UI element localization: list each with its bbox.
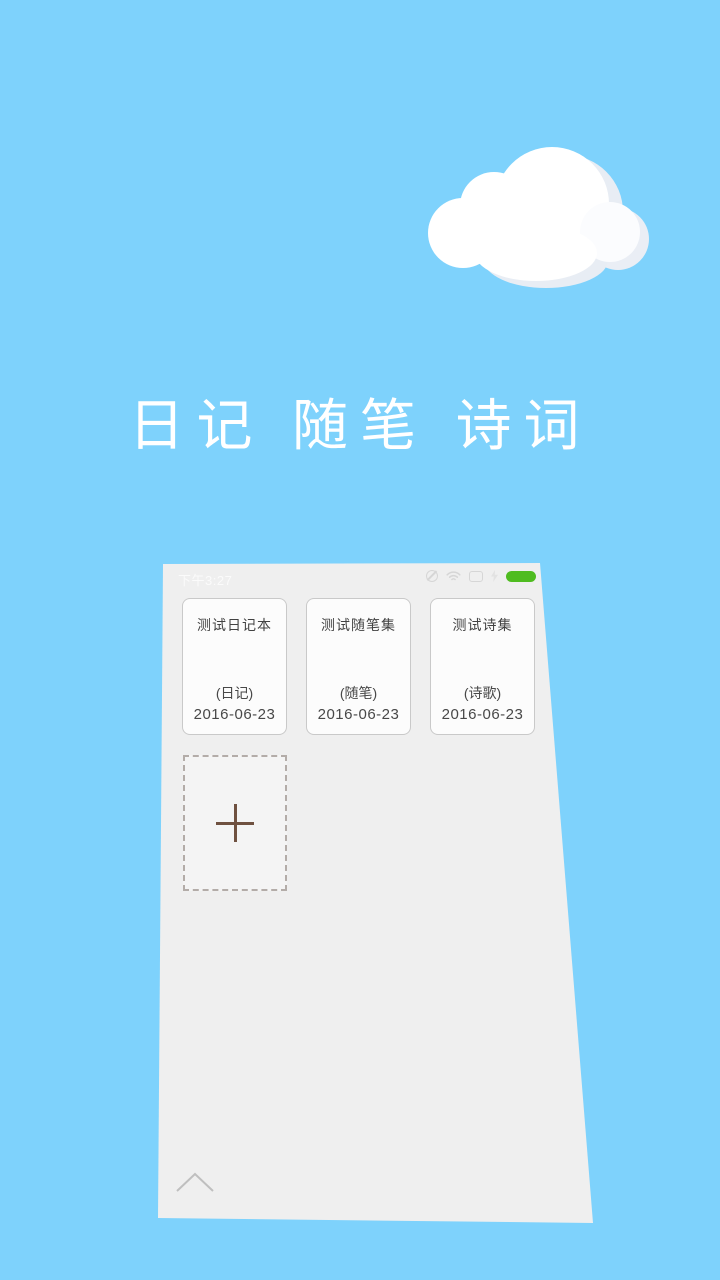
wallpaper: { "wallpaper": { "title": "日记 随笔 诗词", "c… <box>0 0 720 1280</box>
notebook-card-poetry[interactable]: 测试诗集 (诗歌) 2016-06-23 <box>430 598 535 735</box>
notebook-date: 2016-06-23 <box>442 706 524 723</box>
add-notebook-button[interactable] <box>183 755 287 891</box>
notebook-category: (随笔) <box>340 683 377 703</box>
notebook-category: (日记) <box>216 683 253 703</box>
notebook-title: 测试诗集 <box>453 615 513 635</box>
wifi-icon <box>446 570 461 582</box>
status-icons <box>426 569 536 583</box>
notebook-date: 2016-06-23 <box>318 706 400 723</box>
status-time: 下午3:27 <box>178 570 232 589</box>
page-title: 日记 随笔 诗词 <box>0 394 720 458</box>
plus-icon <box>216 804 254 842</box>
chevron-up-icon[interactable] <box>176 1172 214 1192</box>
battery-icon <box>506 571 536 582</box>
notebook-grid: 测试日记本 (日记) 2016-06-23 测试随笔集 (随笔) 2016-06… <box>182 598 535 735</box>
notebook-date: 2016-06-23 <box>194 706 276 723</box>
notebook-card-diary[interactable]: 测试日记本 (日记) 2016-06-23 <box>182 598 287 735</box>
sim-card-icon <box>469 571 483 582</box>
notebook-category: (诗歌) <box>464 683 501 703</box>
notebook-card-essay[interactable]: 测试随笔集 (随笔) 2016-06-23 <box>306 598 411 735</box>
charging-bolt-icon <box>491 570 498 582</box>
cloud-illustration <box>424 140 649 292</box>
app-screenshot: 下午3:27 测试日记本 (日记) 2016-06-23 测试随笔集 ( <box>157 563 593 1223</box>
notebook-title: 测试随笔集 <box>321 615 396 635</box>
notebook-title: 测试日记本 <box>197 615 272 635</box>
mute-icon <box>426 570 438 582</box>
